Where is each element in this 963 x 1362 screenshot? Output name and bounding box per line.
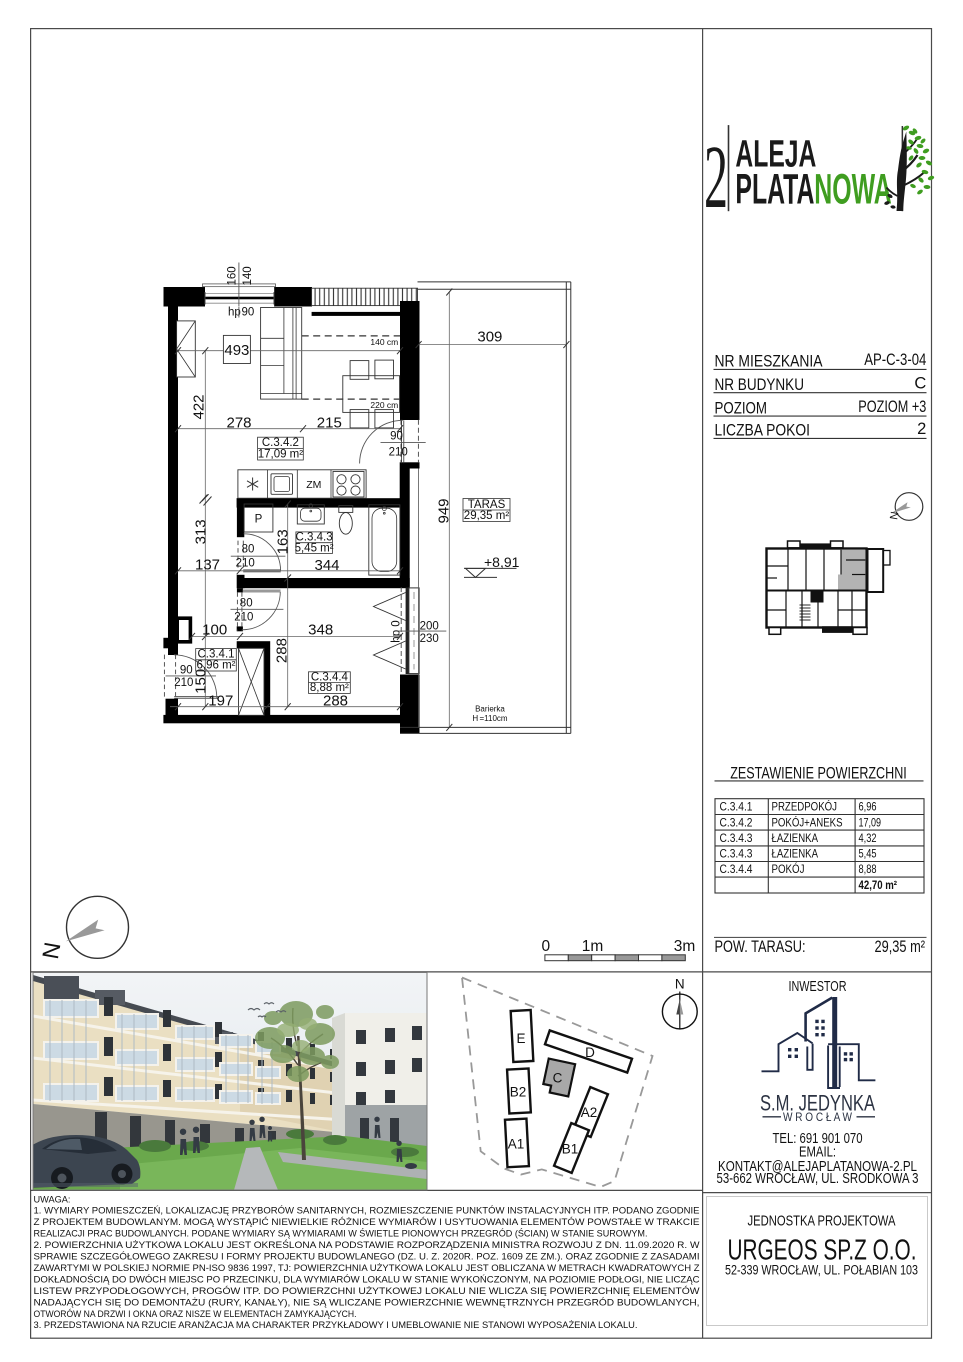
svg-text:DOKŁADNOŚCIĄ DO DWÓCH MIEJSC P: DOKŁADNOŚCIĄ DO DWÓCH MIEJSC PO PRZECINK…: [34, 1273, 700, 1284]
svg-text:NADAJĄCYCH SIĘ DO DEMONTAŻU (R: NADAJĄCYCH SIĘ DO DEMONTAŻU (RURY, KANAŁ…: [34, 1297, 700, 1307]
svg-text:REALIZACJI PRAC BUDOWLANYCH. P: REALIZACJI PRAC BUDOWLANYCH. PODANE WYMI…: [34, 1228, 648, 1239]
svg-text:3. PRZEDSTAWIONA NA RZUCIE ARA: 3. PRZEDSTAWIONA NA RZUCIE ARANŻACJA MA …: [34, 1320, 638, 1330]
svg-text:LISTEW PRZYPODŁOGOWYCH, PROGÓW: LISTEW PRZYPODŁOGOWYCH, PROGÓW ITP. DO P…: [34, 1286, 700, 1296]
svg-text:SPRAWIE SZCZEGÓŁOWEGO ZAKRESU: SPRAWIE SZCZEGÓŁOWEGO ZAKRESU I FORMY PR…: [34, 1252, 700, 1262]
svg-text:1. WYMIARY POMIESZCZEŃ, LOKALI: 1. WYMIARY POMIESZCZEŃ, LOKALIZACJĘ PRZY…: [34, 1206, 700, 1216]
svg-text:OTWORÓW NA DRZWI I OKNA ORAZ N: OTWORÓW NA DRZWI I OKNA ORAZ NISZE W ELE…: [34, 1309, 357, 1319]
svg-text:Z PROJEKTEM BUDOWLANYM. MOGĄ W: Z PROJEKTEM BUDOWLANYM. MOGĄ WYSTĄPIĆ NI…: [34, 1217, 700, 1227]
svg-text:2. POWIERZCHNIA UŻYTKOWA LOKAL: 2. POWIERZCHNIA UŻYTKOWA LOKALU JEST OKR…: [34, 1239, 700, 1250]
svg-text:UWAGA:: UWAGA:: [34, 1194, 71, 1204]
svg-text:ZAWARTYMI W POLSKIEJ NORMIE PN: ZAWARTYMI W POLSKIEJ NORMIE PN-ISO 9836 …: [34, 1263, 700, 1273]
